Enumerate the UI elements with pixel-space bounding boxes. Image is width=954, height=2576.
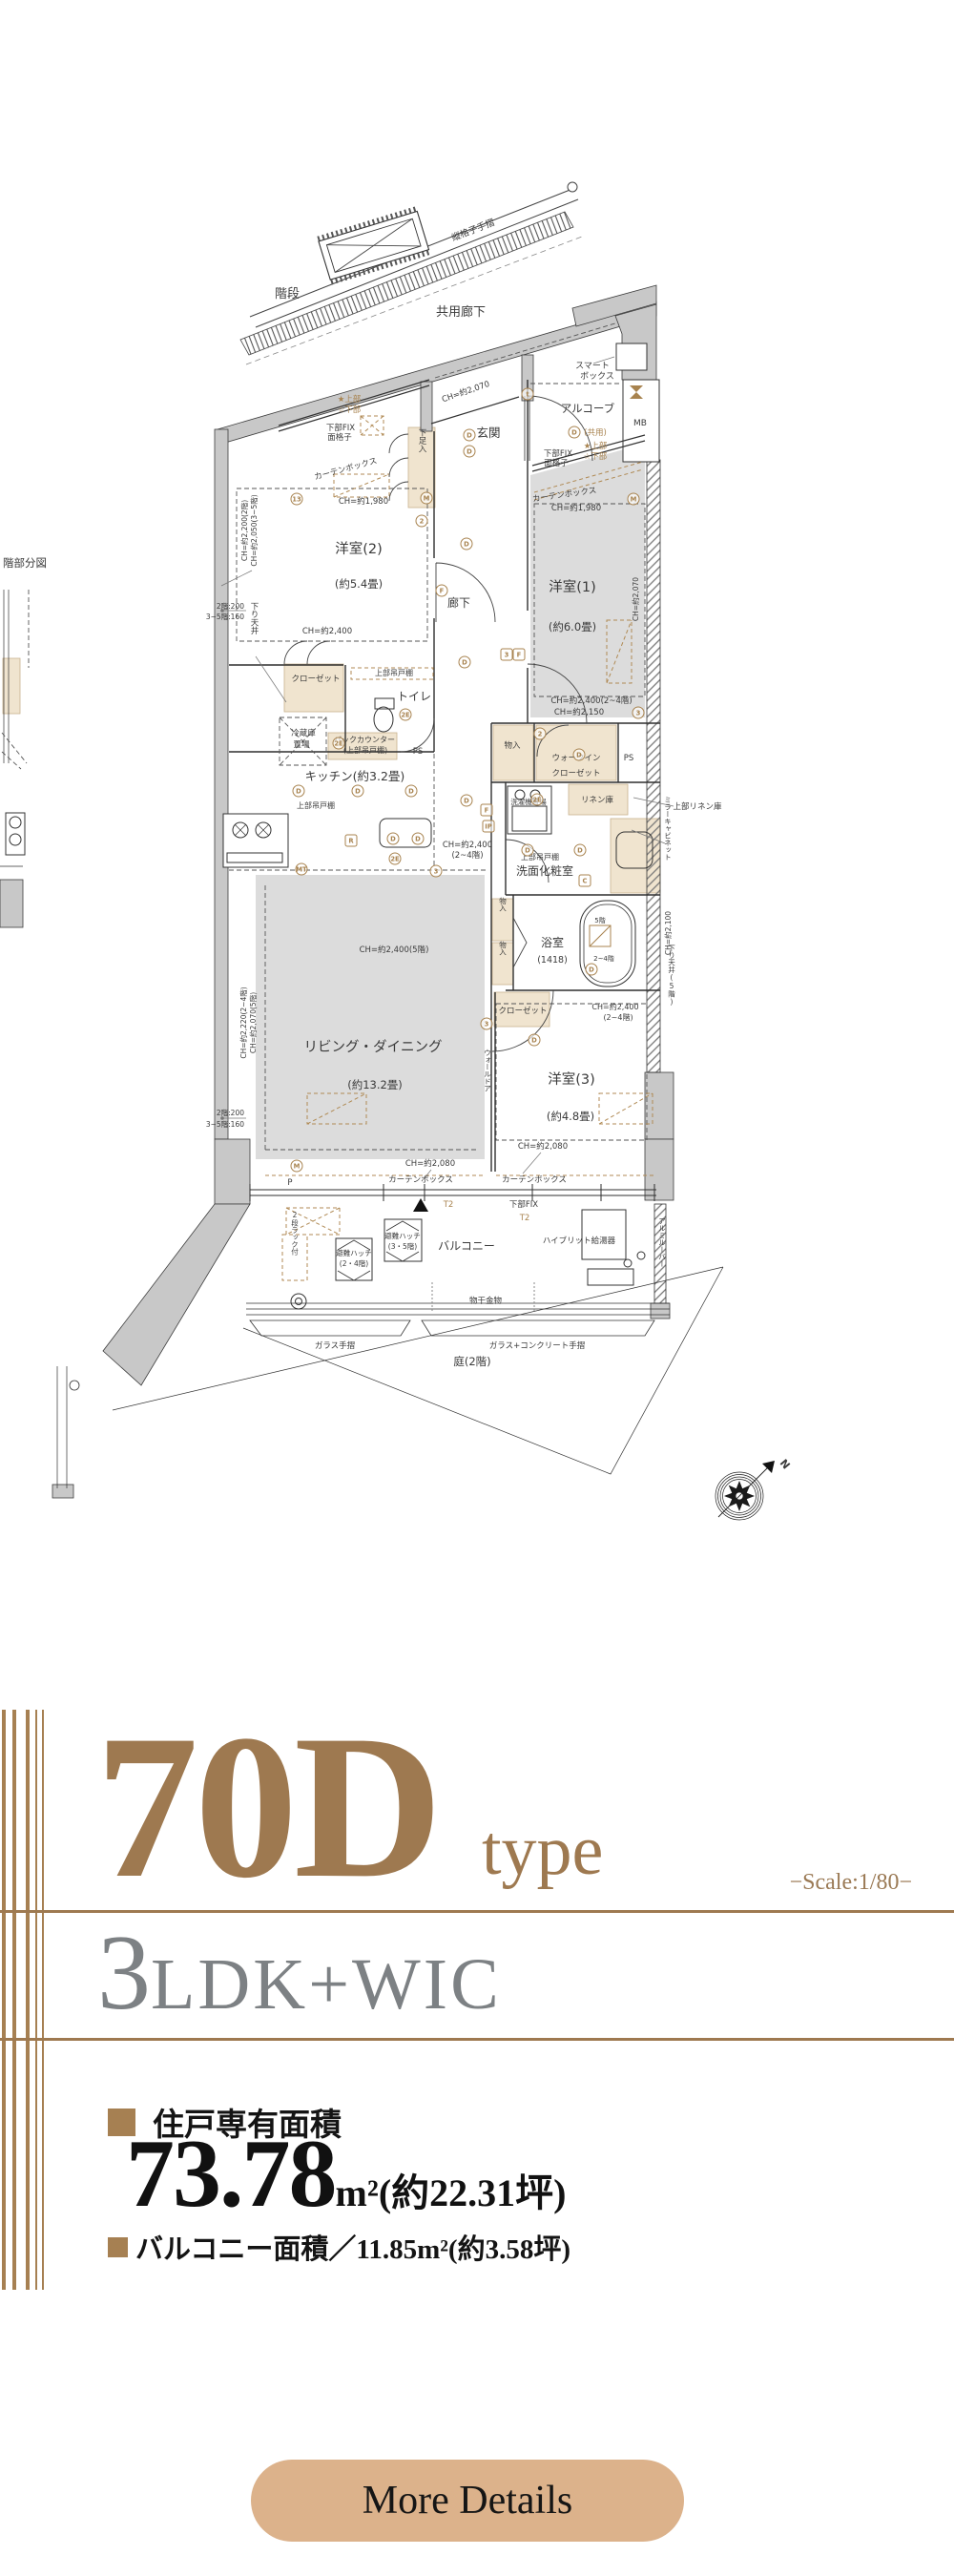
plan-label-heater: ハイブリット給湯器 <box>543 1236 616 1246</box>
plan-label-ch2400-w3b: (2~4階) <box>603 1012 633 1022</box>
plan-label-west1: 洋室(1) <box>549 579 596 595</box>
plan-label-fridge-1: 冷蔵庫 <box>291 728 316 738</box>
plan-label-backcounter-2: (上部吊戸棚) <box>343 745 387 755</box>
svg-text:2E: 2E <box>334 740 343 748</box>
plan-label-shared-mark: (共用) <box>584 428 607 438</box>
plan-label-bath-5f: 5階 <box>594 916 605 924</box>
plan-label-storage-b1: 物入 <box>498 896 507 912</box>
plan-mark-f: F <box>513 649 525 660</box>
balcony-area-label: バルコニー面積／11.85m²(約3.58坪) <box>135 2227 570 2267</box>
svg-text:D: D <box>467 448 472 456</box>
plan-label-ch-left2b: CH=約2,070(5階) <box>248 992 258 1053</box>
deco-stripe <box>35 1710 37 2290</box>
plan-label-ch2080-w3: CH=約2,080 <box>518 1141 568 1152</box>
plan-mark-d: D <box>569 426 580 438</box>
plan-label-glass-concrete-rail: ガラス+コンクリート手摺 <box>489 1340 585 1351</box>
window-band-bottom <box>250 1184 656 1201</box>
plan-label-shelf-kitchen: 上部吊戸棚 <box>297 800 335 810</box>
plan-label-west2: 洋室(2) <box>335 541 383 557</box>
plan-label-bath-24f: 2~4階 <box>593 954 614 963</box>
plan-label-fix2-1: 下部FIX <box>544 448 572 459</box>
plan-mark-m: M <box>421 492 432 504</box>
plan-mark-d: D <box>522 844 533 856</box>
plan-mark-2: 2 <box>416 515 427 527</box>
plan-label-ch1980-w1: CH=約1,980 <box>551 503 601 513</box>
svg-text:D: D <box>571 429 577 437</box>
plan-label-ps-1: PS <box>413 747 424 757</box>
plan-label-common-corridor: 共用廊下 <box>436 304 486 320</box>
plan-mark-d: D <box>464 429 475 441</box>
plan-mark-mt: MT <box>296 863 307 875</box>
plan-label-west1-size: (約6.0畳) <box>549 620 596 634</box>
plan-label-bath: 浴室 <box>541 935 564 949</box>
scale-note: −Scale:1/80− <box>790 1870 912 1896</box>
plan-label-hallway: 廊下 <box>447 595 470 610</box>
entry-triangle-icon <box>413 1198 428 1212</box>
deco-stripe <box>42 1710 44 2290</box>
plan-label-garden: 庭(2階) <box>453 1355 490 1368</box>
svg-text:D: D <box>464 798 469 805</box>
plan-mark-d: D <box>464 446 475 457</box>
plan-label-hatch35-1: 避難ハッチ <box>384 1231 421 1240</box>
plan-label-glass-rail: ガラス手摺 <box>315 1340 355 1351</box>
plan-label-wic-2: クローゼット <box>551 768 600 779</box>
plan-mark-2e: 2E <box>400 709 411 720</box>
svg-text:F: F <box>440 588 445 595</box>
plan-mark-d: D <box>412 833 424 844</box>
plan-label-senmen: 洗面化粧室 <box>516 863 573 878</box>
plan-label-bath-size: (1418) <box>537 955 568 966</box>
right-wall-hatch <box>647 460 660 1072</box>
page: 階段共用廊下縦格子手摺スマートボックスアルコーブMB(共用)★上部☆下部下部FI… <box>0 0 954 2576</box>
svg-text:D: D <box>390 836 396 843</box>
plan-mark-3: 3 <box>430 865 442 877</box>
plan-label-west2-size: (約5.4畳) <box>335 577 383 591</box>
plan-label-genkan: 玄関 <box>476 426 500 440</box>
svg-text:2: 2 <box>538 731 543 738</box>
plan-mark-r: R <box>345 835 357 846</box>
svg-text:D: D <box>531 1037 537 1045</box>
plan-mark-2e: 2E <box>531 794 543 805</box>
svg-text:D: D <box>577 847 583 855</box>
ac-unit-icon <box>588 1269 633 1285</box>
plan-mark-d: D <box>387 833 399 844</box>
plan-mark-d: D <box>405 785 417 797</box>
room-layout: 3LDK+WIC <box>97 1920 502 2026</box>
plan-mark-2e: 2E <box>389 853 401 864</box>
plan-label-ch2400-w2: CH=約2,400 <box>302 626 352 636</box>
plan-label-ps-2: PS <box>624 754 634 763</box>
svg-text:3: 3 <box>434 868 439 876</box>
plan-label-mirror-cabinet: ミラーキャビネット <box>664 796 673 861</box>
plan-label-alcove: アルコーブ <box>561 402 615 415</box>
plan-label-t2-b: T2 <box>519 1214 530 1223</box>
plan-label-fix1-1: 下部FIX <box>326 423 355 433</box>
toilet-icon <box>374 707 393 732</box>
compass-icon <box>715 1461 775 1520</box>
plan-mark-f: F <box>481 804 492 816</box>
plan-label-closet-w3: クローゼット <box>498 1006 547 1016</box>
plan-label-closet-w2: クローゼット <box>291 674 340 684</box>
svg-text:M: M <box>424 495 430 503</box>
plan-mark-d: D <box>573 749 585 760</box>
stove-counter <box>223 814 288 867</box>
kitchen-sink-icon <box>380 819 431 847</box>
svg-text:C: C <box>583 878 588 885</box>
svg-text:D: D <box>467 432 472 440</box>
plan-label-ch-genkan: CH=約2,070 <box>441 379 491 405</box>
plan-label-linen: リネン庫 <box>581 795 614 805</box>
plan-mark-d: D <box>529 1034 540 1046</box>
plan-mark-m: M <box>628 493 639 505</box>
plan-label-ch-left2a: CH=約2,220(2~4階) <box>238 987 248 1058</box>
plan-type-code: 70D <box>95 1689 439 1925</box>
svg-text:R: R <box>348 838 354 845</box>
plan-label-fix-bottom: 下部FIX <box>509 1199 538 1210</box>
svg-text:IP: IP <box>485 823 492 831</box>
svg-text:D: D <box>415 836 421 843</box>
plan-mark-d: D <box>461 538 472 550</box>
plan-mark-d: D <box>574 844 586 856</box>
escape-hatch-icon <box>384 1219 422 1261</box>
slop-sink-icon <box>291 1294 306 1309</box>
area-unit: m² <box>336 2171 379 2214</box>
balcony-area: バルコニー面積／11.85m²(約3.58坪) <box>108 2227 570 2267</box>
plan-label-dim1a: 2階:200 <box>217 601 244 611</box>
svg-text:D: D <box>296 788 301 796</box>
plan-label-smartbox-2: ボックス <box>580 371 614 382</box>
plan-label-ch1980-w2: CH=約1,980 <box>339 496 388 507</box>
plan-label-fix2-2: 面格子 <box>544 458 569 468</box>
plan-label-ch-left1b: CH=約2,050(3~5階) <box>249 494 259 566</box>
plan-label-t2-a: T2 <box>443 1200 454 1210</box>
svg-text:M: M <box>631 496 637 504</box>
plan-label-ld-1: リビング・ダイニング <box>304 1039 443 1055</box>
plan-label-curtain-w3: カーテンボックス <box>502 1175 567 1185</box>
plan-label-toilet: トイレ <box>397 690 431 703</box>
plan-label-ch2400-ld: CH=約2,400(5階) <box>360 945 429 955</box>
plan-mark-3: 3 <box>481 1018 492 1029</box>
svg-text:3: 3 <box>505 652 509 659</box>
svg-text:13: 13 <box>292 496 301 504</box>
plan-label-dim2b: 3~5階:160 <box>206 1119 244 1129</box>
svg-text:2E: 2E <box>390 856 400 863</box>
plan-mark-d: D <box>586 964 597 975</box>
area-tsubo: (約22.31坪) <box>379 2171 567 2214</box>
svg-text:2E: 2E <box>401 712 410 719</box>
plan-label-curtain-w2: カーテンボックス <box>313 456 378 482</box>
balcony-rails <box>246 1303 670 1336</box>
plan-label-fridge-2: 置場 <box>293 739 310 750</box>
plan-label-ch2400-k2: (2~4階) <box>451 850 483 861</box>
plan-mark-13: 13 <box>291 493 302 505</box>
plan-label-lattice-handrail: 縦格子手摺 <box>450 217 497 243</box>
plan-label-storage-b2: 物入 <box>498 940 507 956</box>
divider-rule <box>0 2038 954 2041</box>
svg-text:D: D <box>355 788 361 796</box>
plan-mark-m: M <box>291 1160 302 1172</box>
deco-stripe <box>12 1710 16 2290</box>
plan-label-hatch24-1: 避難ハッチ <box>336 1248 372 1257</box>
plan-label-curtain-ld: カーテンボックス <box>388 1175 453 1185</box>
svg-text:2E: 2E <box>532 797 542 804</box>
plan-mark-d: D <box>293 785 304 797</box>
layout-number: 3 <box>97 1914 151 2032</box>
area-value: 73.78m²(約22.31坪) <box>126 2126 566 2223</box>
plan-label-ch2400-w1: CH=約2,400(2~4階) <box>550 696 632 706</box>
plan-label-drying-bar: 物干金物 <box>469 1296 503 1306</box>
plan-mark-3: 3 <box>633 707 644 718</box>
svg-text:F: F <box>517 652 522 659</box>
plan-label-p-mark: P <box>287 1178 292 1188</box>
svg-text:D: D <box>576 752 582 759</box>
plan-mark-t: t <box>522 388 533 400</box>
plan-label-dim1b: 3~5階:160 <box>206 612 244 621</box>
plan-label-ch2400-k1: CH=約2,400 <box>443 840 492 850</box>
plan-label-shelf-toilet: 上部吊戸棚 <box>375 668 413 677</box>
plan-label-ld-2: (約13.2畳) <box>347 1078 403 1091</box>
plan-label-legend2-upper: ★上部 <box>584 441 608 451</box>
plan-label-hatch35-2: (3・5階) <box>388 1241 417 1251</box>
plan-label-storage-wic: 物入 <box>504 740 521 751</box>
plan-label-rack: 2段ラック付 <box>290 1211 299 1257</box>
plan-label-west3-size: (約4.8畳) <box>547 1110 594 1123</box>
plan-label-louver: アルミルーバー <box>657 1216 666 1267</box>
svg-text:D: D <box>464 541 469 549</box>
svg-text:MT: MT <box>296 866 307 874</box>
plan-mark-d: D <box>461 795 472 806</box>
svg-text:D: D <box>462 659 467 667</box>
plan-mark-f: F <box>436 585 447 596</box>
neighbor-drain <box>70 1381 79 1390</box>
plan-label-compass-n: N <box>778 1457 793 1471</box>
divider-rule <box>0 1910 954 1913</box>
plan-label-shoe-box: 下足入 <box>417 428 426 453</box>
plan-label-upper-linen: 上部リネン庫 <box>673 801 722 812</box>
plan-label-wall-door: ウォールドア <box>483 1049 491 1092</box>
more-details-button[interactable]: More Details <box>251 2460 684 2542</box>
plan-label-ch2080-ld: CH=約2,080 <box>405 1158 455 1169</box>
svg-text:D: D <box>408 788 414 796</box>
plan-label-balcony: バルコニー <box>438 1239 495 1253</box>
svg-text:3: 3 <box>636 710 641 717</box>
plan-type-word: type <box>482 1811 603 1892</box>
plan-label-sagari-5f: 下り天井(5階) <box>667 944 675 1006</box>
plan-label-smartbox-1: スマート <box>575 362 610 371</box>
plan-label-ch2400-w3a: CH=約2,400 <box>591 1002 638 1011</box>
plan-label-ch2070-w1: CH=約2,070 <box>631 577 640 621</box>
svg-text:M: M <box>294 1163 301 1171</box>
svg-text:3: 3 <box>485 1021 489 1028</box>
plan-mark-ip: IP <box>483 821 494 832</box>
svg-text:D: D <box>589 966 594 974</box>
plan-label-hatch24-2: (2・4階) <box>340 1258 368 1268</box>
deco-stripe <box>26 1710 30 2290</box>
plan-label-ch2150: CH=約2,150 <box>554 707 604 717</box>
plan-label-legend1-upper: ★上部 <box>338 394 362 405</box>
area-number: 73.78 <box>126 2120 336 2228</box>
plan-mark-d: D <box>459 656 470 668</box>
layout-letters: LDK+WIC <box>151 1944 502 2025</box>
svg-text:F: F <box>485 807 489 815</box>
svg-text:D: D <box>525 847 530 855</box>
plan-label-mb: MB <box>633 419 647 428</box>
water-heater-icon <box>582 1210 626 1259</box>
plan-labels: 階段共用廊下縦格子手摺スマートボックスアルコーブMB(共用)★上部☆下部下部FI… <box>3 217 793 1471</box>
floor-plan: 階段共用廊下縦格子手摺スマートボックスアルコーブMB(共用)★上部☆下部下部FI… <box>0 0 954 1622</box>
plan-label-legend2-lower: ☆下部 <box>584 451 608 462</box>
plan-label-stairs: 階段 <box>275 287 300 301</box>
plan-mark-2e: 2E <box>333 737 344 749</box>
plan-label-fix1-2: 面格子 <box>327 432 352 443</box>
corridor-band <box>240 182 582 364</box>
plan-mark-d: D <box>352 785 363 797</box>
plan-mark-3: 3 <box>501 649 512 660</box>
plan-mark-c: C <box>579 875 591 886</box>
plan-label-west3: 洋室(3) <box>548 1071 595 1088</box>
plan-label-kitchen: キッチン(約3.2畳) <box>305 769 405 783</box>
washer-icon <box>508 786 551 834</box>
deco-stripe <box>2 1710 6 2290</box>
plan-label-mini-plan-title: 階部分図 <box>3 556 47 570</box>
svg-text:2: 2 <box>420 518 425 526</box>
plan-label-ch-left1a: CH=約2,200(2階) <box>239 500 249 561</box>
square-bullet-icon <box>108 2237 128 2257</box>
plan-label-sagari-w2: 下り天井 <box>249 602 259 635</box>
plan-mark-2: 2 <box>534 728 546 739</box>
plan-label-dim2a: 2階:200 <box>217 1108 244 1117</box>
plan-label-legend1-lower: ☆下部 <box>338 405 362 415</box>
